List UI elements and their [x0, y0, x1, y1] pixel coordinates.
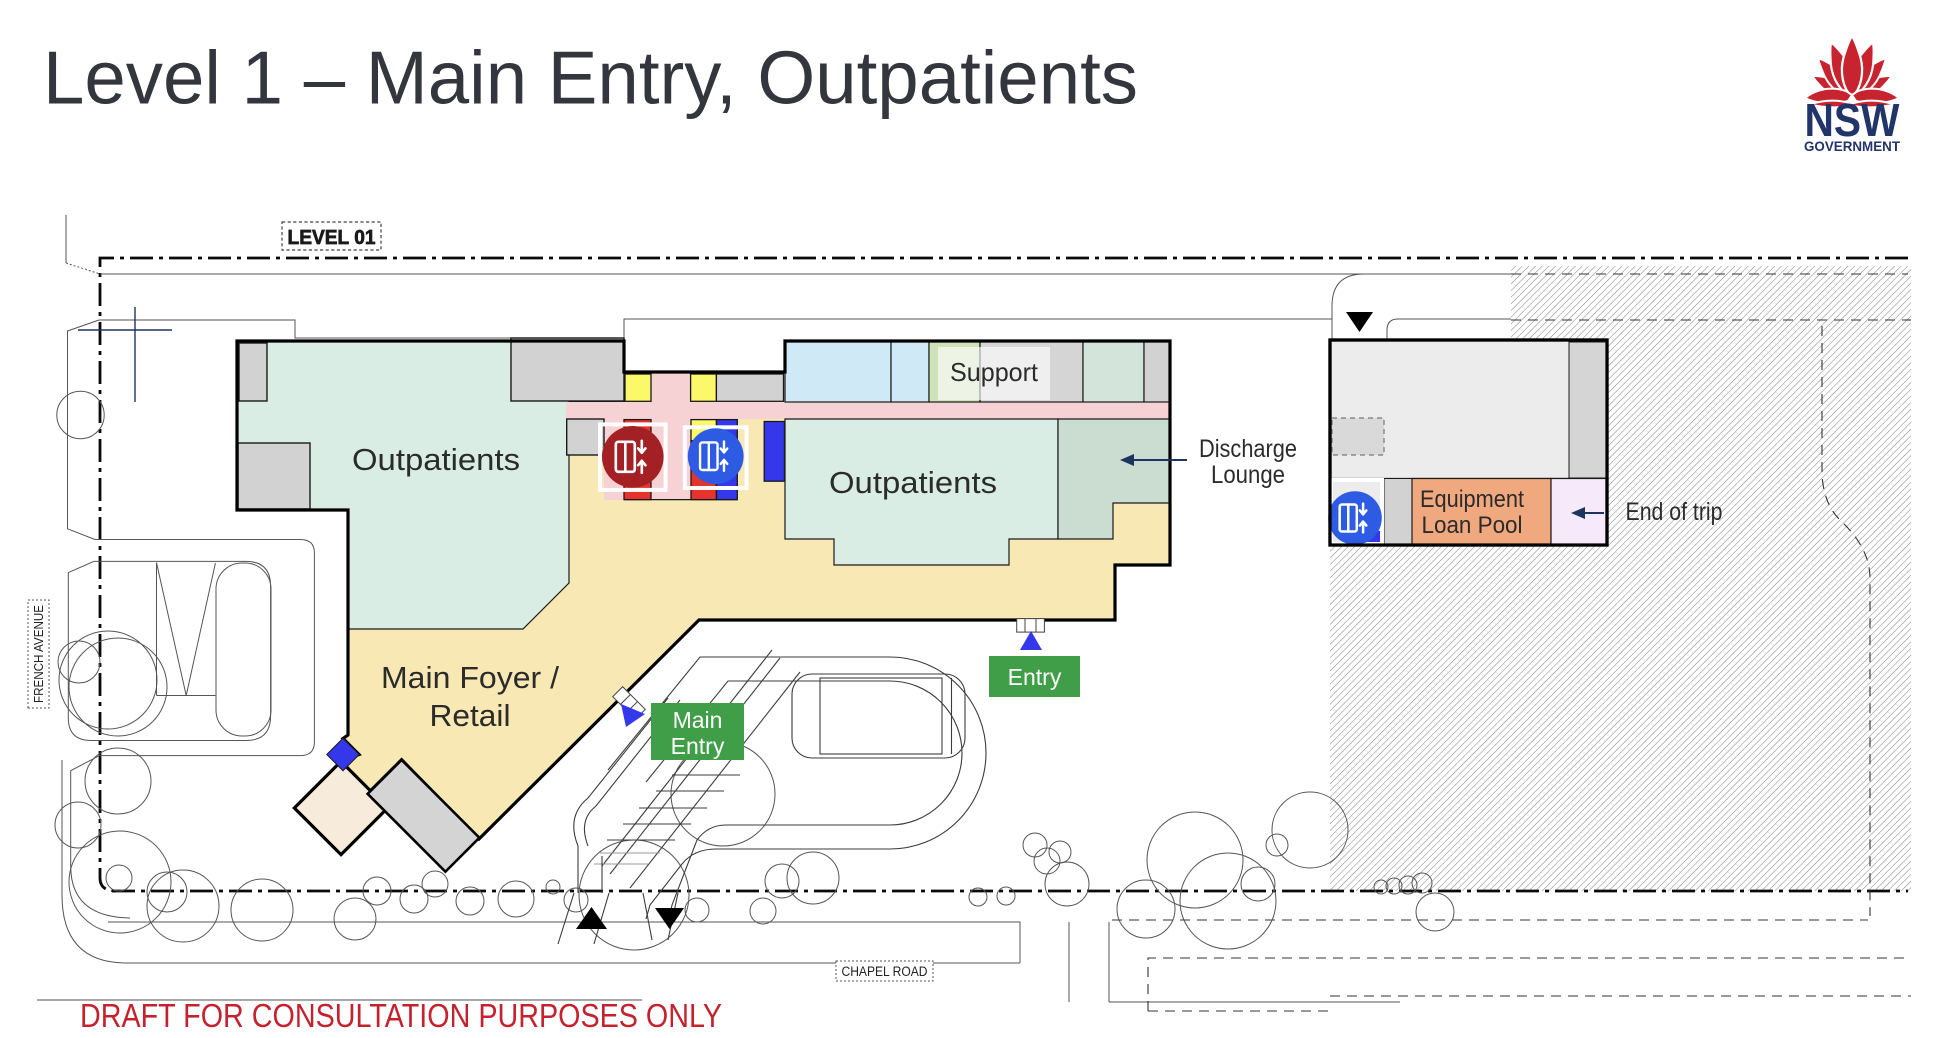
svg-text:Retail: Retail	[430, 698, 511, 733]
svg-text:Entry: Entry	[671, 733, 725, 759]
svg-text:Entry: Entry	[1008, 664, 1062, 690]
svg-text:Main Foyer /: Main Foyer /	[381, 660, 559, 695]
svg-text:Support: Support	[950, 357, 1039, 387]
svg-text:Equipment: Equipment	[1420, 486, 1524, 513]
svg-text:Outpatients: Outpatients	[829, 465, 997, 500]
svg-text:DRAFT FOR CONSULTATION PURPOSE: DRAFT FOR CONSULTATION PURPOSES ONLY	[80, 997, 722, 1034]
svg-text:FRENCH AVENUE: FRENCH AVENUE	[32, 605, 46, 703]
svg-text:Discharge: Discharge	[1199, 435, 1297, 463]
svg-text:End of trip: End of trip	[1626, 498, 1723, 526]
svg-text:Main: Main	[673, 707, 723, 733]
svg-text:Level 1 – Main Entry, Outpatie: Level 1 – Main Entry, Outpatients	[43, 36, 1138, 120]
svg-text:Outpatients: Outpatients	[352, 442, 520, 477]
svg-text:GOVERNMENT: GOVERNMENT	[1804, 138, 1900, 154]
svg-text:CHAPEL ROAD: CHAPEL ROAD	[842, 964, 928, 979]
svg-text:LEVEL 01: LEVEL 01	[288, 227, 376, 249]
svg-text:Lounge: Lounge	[1211, 461, 1285, 489]
svg-text:Loan Pool: Loan Pool	[1422, 512, 1523, 539]
